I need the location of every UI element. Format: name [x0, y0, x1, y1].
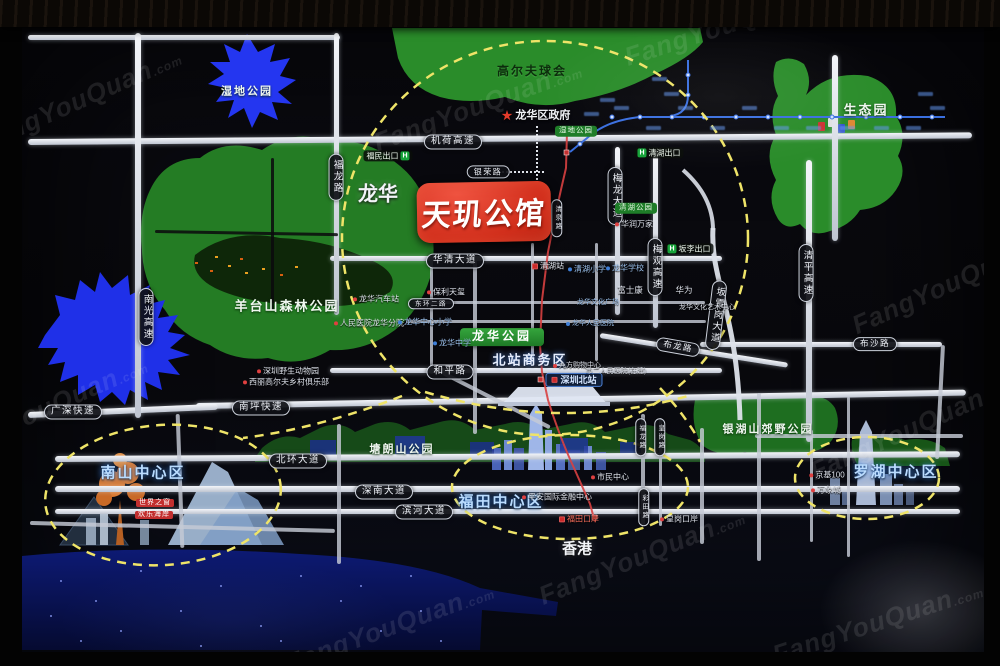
poi-dot-icon	[334, 321, 338, 325]
poi-dot-icon	[522, 495, 526, 499]
photo-ceiling	[0, 0, 1000, 27]
road-label: 北环大道	[269, 454, 327, 469]
road-segment	[55, 451, 960, 462]
poi-label: 龙华中心小学	[398, 317, 452, 326]
road-segment	[473, 258, 477, 434]
road-segment	[330, 256, 722, 261]
poi-dot-icon	[660, 517, 664, 521]
poi-label: 市民中心	[591, 472, 629, 481]
poi-label: 保利天玺	[427, 287, 465, 296]
metro-station-name-smudge	[646, 126, 661, 130]
road-segment	[135, 33, 141, 418]
road-label: 深南大道	[355, 485, 413, 500]
poi-dot-icon	[427, 290, 431, 294]
road-label: 东环二路	[408, 298, 454, 309]
road-label: 清平高速	[799, 244, 814, 302]
road-label: 华清大道	[426, 254, 484, 269]
road-label: 和平路	[426, 365, 473, 380]
road-label: 机荷高速	[424, 135, 482, 150]
map-screen-photo: 龙华香港北站商务区南山中心区福田中心区罗湖中心区高尔夫球会生态园湿地公园羊台山森…	[0, 0, 1000, 666]
metro-station-name-smudge	[930, 106, 945, 110]
poi-label: 西丽高尔夫乡村俱乐部	[243, 377, 329, 386]
poi-label: 深圳野生动物园	[257, 366, 319, 375]
red-star-icon: ★	[502, 112, 513, 120]
exit-label: H坂李出口	[664, 243, 713, 254]
metro-station-name-smudge	[840, 126, 855, 130]
road-label: 银荣路	[467, 165, 510, 178]
metro-station-name-smudge	[874, 126, 889, 130]
road-segment	[832, 55, 838, 241]
photo-edge-right	[984, 0, 1000, 666]
poi-label: 龙华学校	[606, 263, 644, 272]
road-label: 南光高速	[139, 288, 154, 346]
poi-dot-icon	[811, 488, 815, 492]
park-name-label: 生态园	[843, 104, 888, 119]
road-segment	[413, 301, 705, 304]
park-label: 龙华公园	[460, 328, 544, 346]
metro-station-name-smudge	[918, 92, 933, 96]
poi-label: 福田口岸	[559, 514, 599, 523]
area-label-longhua: 龙华	[358, 184, 398, 207]
metro-station-name-smudge	[664, 92, 679, 96]
highway-exit-icon: H	[400, 152, 409, 161]
park-label-small: 湿地公园	[555, 126, 597, 137]
project-name: 天玑公馆	[420, 189, 547, 235]
area-label-hongkong: 香港	[562, 540, 592, 557]
highway-exit-icon: H	[637, 149, 646, 158]
poi-label: 人民医院龙华分院	[334, 318, 404, 327]
park-name-label: 银湖山郊野公园	[723, 424, 814, 437]
government-label: ★龙华区政府	[502, 110, 571, 123]
poi-dot-icon	[568, 267, 572, 271]
road-label: 彩田路	[638, 488, 649, 526]
road-label: 皇岗路	[654, 418, 665, 456]
poi-dot-icon	[243, 380, 247, 384]
photo-edge-bottom	[0, 652, 1000, 666]
poi-dot-icon	[353, 297, 357, 301]
poi-dot-icon	[257, 369, 261, 373]
metro-station-icon	[532, 263, 538, 269]
dark-road-segment	[155, 230, 338, 236]
road-label: 梅龙大道	[608, 167, 623, 225]
project-badge: 天玑公馆	[416, 181, 551, 243]
poi-label: 龙华文化艺术中心	[679, 304, 735, 312]
poi-dot-icon	[398, 320, 402, 324]
road-segment	[28, 132, 972, 145]
road-label: 广深快速	[44, 405, 102, 420]
park-name-label: 羊台山森林公园	[234, 300, 339, 315]
poi-label: 万象城	[811, 485, 841, 494]
poi-label: 龙华汽车站	[353, 294, 399, 303]
poi-label: 华润万家	[615, 219, 653, 228]
metro-station-name-smudge	[614, 106, 629, 110]
metro-station-name-smudge	[652, 77, 667, 81]
road-segment	[28, 35, 340, 40]
road-segment	[757, 393, 761, 561]
metro-station-name-smudge	[584, 112, 599, 116]
poi-dot-icon	[566, 322, 570, 326]
poi-dot-icon	[433, 341, 437, 345]
poi-label: 京基100	[809, 470, 844, 479]
highway-exit-icon: H	[667, 245, 676, 254]
golf-club-label: 高尔夫球会	[497, 65, 567, 79]
metro-station-name-smudge	[806, 126, 821, 130]
road-segment	[700, 342, 942, 347]
park-name-label: 塘朗山公园	[370, 444, 435, 457]
poi-label: 清湖站	[532, 261, 564, 270]
landmark-label: 欢乐海岸	[135, 511, 173, 519]
poi-label: 皇岗口岸	[660, 514, 698, 523]
park-label-small: 清湖公园	[615, 203, 657, 214]
road-segment	[847, 397, 850, 557]
road-segment	[330, 368, 722, 373]
road-label: 梅观高速	[648, 238, 663, 296]
road-segment	[337, 424, 341, 564]
metro-station-name-smudge	[600, 98, 615, 102]
district-label-luohu: 罗湖中心区	[853, 463, 938, 480]
poi-dot-icon	[553, 364, 557, 368]
road-segment	[196, 390, 966, 409]
poi-dot-icon	[591, 475, 595, 479]
metro-station-icon	[551, 377, 557, 383]
district-label-nanshan: 南山中心区	[100, 464, 185, 481]
poi-label: 华为	[675, 286, 692, 296]
park-name-label: 湿地公园	[221, 86, 273, 99]
road-segment	[935, 345, 945, 459]
road-label: 布沙路	[853, 337, 897, 351]
poi-label: 平安国际金融中心	[522, 492, 592, 501]
metro-station-name-smudge	[710, 126, 725, 130]
metro-station-name-smudge	[678, 106, 693, 110]
poi-label: 龙华文化广场	[577, 299, 619, 307]
exit-label: 福民出口H	[363, 150, 412, 161]
landmark-label: 世界之窗	[136, 499, 174, 507]
poi-dot-icon	[615, 222, 619, 226]
metro-station-name-smudge	[742, 106, 757, 110]
photo-edge-left	[0, 0, 22, 666]
road-label: 清泉路	[551, 199, 562, 237]
poi-label: 龙华人民医院	[566, 320, 614, 328]
road-segment	[700, 428, 704, 544]
poi-dot-icon	[809, 473, 813, 477]
metro-station-name-smudge	[774, 126, 789, 130]
poi-dot-icon	[606, 266, 610, 270]
exit-label: H清湖出口	[634, 147, 683, 158]
road-label: 福龙路	[329, 154, 344, 201]
metro-station-icon	[559, 516, 565, 522]
poi-label: 市二人民医院(在建)	[586, 368, 647, 376]
poi-label: 龙华中学	[433, 338, 471, 347]
road-segment	[430, 258, 433, 374]
road-label: 滨河大道	[395, 505, 453, 520]
dark-road-segment	[271, 158, 274, 310]
metro-station-name-smudge	[906, 126, 921, 130]
road-label: 南坪快速	[232, 401, 290, 416]
road-label: 福龙路	[635, 418, 646, 456]
poi-label: 清湖小学	[568, 264, 606, 273]
poi-label: 富士康	[617, 286, 643, 296]
